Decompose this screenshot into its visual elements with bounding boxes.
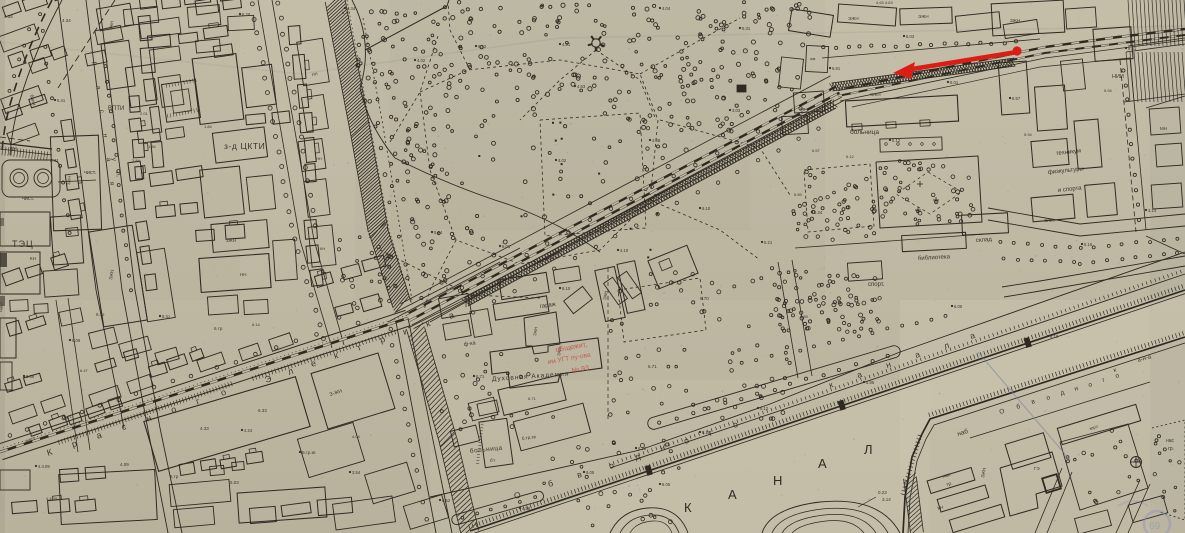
svg-text:4.58: 4.58	[522, 506, 531, 511]
svg-text:6.14: 6.14	[252, 322, 261, 327]
svg-text:гр.: гр.	[1168, 446, 1174, 452]
svg-text:ГЭ: ГЭ	[1034, 466, 1040, 471]
svg-text:6.42: 6.42	[478, 44, 487, 49]
svg-text:6.89: 6.89	[794, 192, 803, 197]
svg-text:6.71: 6.71	[528, 396, 537, 401]
svg-text:6.81: 6.81	[832, 66, 841, 71]
svg-text:6.тр: 6.тр	[162, 314, 170, 319]
svg-text:4.88: 4.88	[652, 138, 661, 143]
svg-text:6.12: 6.12	[760, 406, 769, 411]
svg-text:8.03: 8.03	[906, 34, 915, 39]
svg-text:3.54: 3.54	[352, 470, 361, 475]
svg-text:чист.: чист.	[84, 170, 97, 176]
svg-text:ЭЖН: ЭЖН	[1044, 218, 1055, 223]
svg-text:Б.тр.зв: Б.тр.зв	[302, 450, 316, 455]
svg-text:ТЭЦ: ТЭЦ	[12, 239, 34, 249]
svg-text:4.02: 4.02	[558, 158, 567, 163]
svg-text:6.01: 6.01	[502, 244, 511, 249]
svg-text:з-д ЦКТИ: з-д ЦКТИ	[224, 141, 265, 151]
svg-text:ДМ: ДМ	[10, 146, 17, 151]
svg-text:4.4.09: 4.4.09	[38, 464, 50, 469]
svg-text:6.05: 6.05	[954, 304, 963, 309]
svg-text:А: А	[818, 456, 827, 471]
svg-text:6.12: 6.12	[892, 138, 901, 143]
svg-text:5.тр: 5.тр	[170, 474, 179, 479]
svg-text:6.57: 6.57	[812, 148, 821, 153]
svg-text:б'т: б'т	[490, 458, 496, 463]
svg-text:6.12: 6.12	[846, 154, 855, 159]
svg-text:4.24: 4.24	[244, 428, 253, 433]
svg-text:6.тр: 6.тр	[214, 326, 223, 331]
svg-text:5.74: 5.74	[434, 230, 443, 235]
svg-text:ЗЖН: ЗЖН	[1010, 18, 1020, 23]
svg-text:0.23: 0.23	[878, 490, 887, 495]
svg-text:6.05: 6.05	[586, 470, 595, 475]
svg-text:6.70: 6.70	[700, 296, 709, 301]
svg-text:6.34: 6.34	[814, 210, 823, 215]
svg-text:5.94: 5.94	[1024, 132, 1033, 137]
svg-text:4.33: 4.33	[200, 426, 209, 431]
svg-text:жм: жм	[800, 106, 806, 111]
svg-text:спорт.: спорт.	[868, 282, 885, 288]
svg-text:ВПТИ: ВПТИ	[108, 106, 124, 112]
svg-text:Л: Л	[864, 442, 873, 457]
svg-text:6.12: 6.12	[638, 446, 647, 451]
svg-text:ЭЖН: ЭЖН	[918, 14, 929, 19]
svg-text:ЭЖН: ЭЖН	[870, 92, 881, 97]
svg-text:3.14: 3.14	[1148, 208, 1157, 213]
svg-text:6.47: 6.47	[80, 368, 89, 373]
svg-text:КН: КН	[320, 246, 325, 251]
svg-text:6.10: 6.10	[702, 206, 711, 211]
svg-text:А: А	[728, 487, 737, 502]
svg-text:МН: МН	[1160, 126, 1167, 131]
svg-text:5.21: 5.21	[764, 240, 773, 245]
svg-text:5.03: 5.03	[230, 480, 239, 485]
svg-text:К: К	[684, 500, 692, 515]
svg-text:4.09: 4.09	[120, 462, 129, 467]
svg-text:5.94: 5.94	[1104, 88, 1113, 93]
svg-text:4.31: 4.31	[562, 42, 571, 47]
svg-text:6.05: 6.05	[662, 482, 671, 487]
svg-text:склад: склад	[976, 237, 993, 244]
svg-text:69: 69	[1149, 521, 1161, 532]
svg-text:4.04: 4.04	[662, 6, 671, 11]
svg-text:6.52: 6.52	[442, 498, 451, 503]
svg-text:Н: Н	[773, 473, 782, 488]
svg-text:4.04: 4.04	[352, 434, 361, 439]
svg-text:1.84: 1.84	[204, 124, 213, 129]
svg-text:4.63: 4.63	[577, 84, 586, 89]
svg-text:6.33: 6.33	[258, 408, 267, 413]
svg-text:6.71: 6.71	[476, 374, 485, 379]
svg-text:6.31: 6.31	[742, 26, 751, 31]
svg-text:6.10: 6.10	[562, 286, 571, 291]
svg-text:6.89: 6.89	[800, 314, 809, 319]
svg-text:3.03: 3.03	[732, 108, 741, 113]
svg-text:6.44: 6.44	[446, 286, 455, 291]
svg-text:1.84: 1.84	[148, 144, 157, 149]
svg-text:6.41: 6.41	[57, 98, 66, 103]
svg-text:нас: нас	[1166, 438, 1175, 444]
svg-text:6.01: 6.01	[950, 80, 959, 85]
svg-text:6.71: 6.71	[648, 364, 657, 369]
svg-text:2.01: 2.01	[140, 111, 149, 116]
svg-text:6.20: 6.20	[242, 12, 251, 17]
svg-text:6.13: 6.13	[702, 430, 711, 435]
svg-text:6.57: 6.57	[1012, 96, 1021, 101]
svg-text:КН: КН	[30, 256, 36, 261]
svg-text:6.81: 6.81	[1128, 46, 1137, 51]
svg-text:НН: НН	[316, 156, 322, 161]
svg-text:4.10: 4.10	[620, 248, 629, 253]
svg-text:ЭЖН: ЭЖН	[848, 16, 859, 21]
svg-text:5.16: 5.16	[1084, 242, 1093, 247]
svg-text:жм: жм	[810, 56, 816, 61]
svg-text:5.85: 5.85	[866, 380, 875, 385]
svg-text:6.09: 6.09	[72, 338, 81, 343]
svg-text:4.34: 4.34	[62, 18, 71, 23]
svg-text:4.63 4.63: 4.63 4.63	[876, 0, 893, 5]
svg-text:6.10: 6.10	[1050, 334, 1059, 339]
svg-text:3.14: 3.14	[882, 497, 891, 502]
svg-text:НН: НН	[240, 272, 247, 277]
svg-text:8.68: 8.68	[26, 374, 35, 379]
svg-text:4.34: 4.34	[347, 6, 356, 11]
svg-text:чист.: чист.	[22, 196, 35, 202]
svg-text:6.тр: 6.тр	[96, 312, 105, 317]
svg-text:НН: НН	[311, 71, 318, 77]
svg-text:больница: больница	[850, 128, 879, 136]
svg-text:4.02: 4.02	[417, 58, 426, 63]
